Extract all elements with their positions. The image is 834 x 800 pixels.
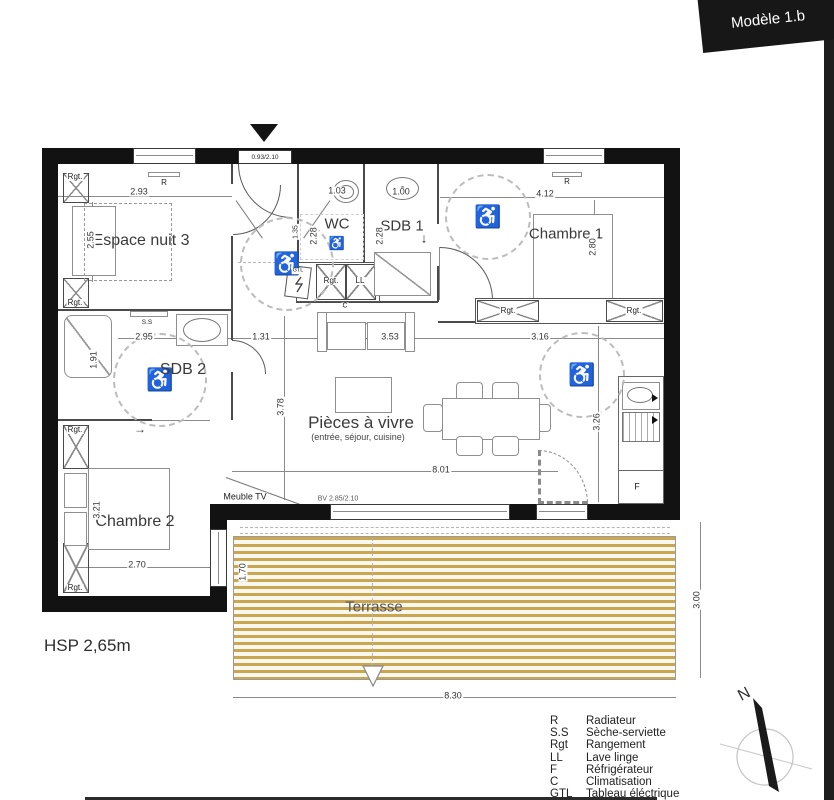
- terrace-edge-dashed: [240, 533, 670, 534]
- legend-abbr: Rgt: [550, 739, 586, 751]
- legend-label: Réfrigérateur: [586, 764, 653, 776]
- entrance-arrow-icon: [250, 124, 278, 142]
- entry-door-label: 0.93/2.10: [238, 150, 292, 164]
- rgt-tag: Rgt.: [67, 173, 84, 181]
- accessibility-circle: ♿: [539, 332, 625, 418]
- north-label: N: [735, 684, 753, 704]
- dim-label: 1.00: [391, 188, 411, 197]
- dining-table: [442, 398, 540, 440]
- basin-sdb2: [183, 318, 221, 342]
- partition: [437, 266, 439, 302]
- chair: [456, 436, 483, 456]
- room-label-chambre2: Chambre 2: [95, 513, 174, 531]
- ss-tag: S.S: [141, 320, 153, 327]
- dim-label: 8.30: [443, 692, 463, 701]
- compass-needle: [753, 698, 779, 792]
- door-leaf: [439, 247, 440, 300]
- room-label-sdb2: SDB 2: [160, 361, 206, 379]
- window-chambre2: [210, 529, 227, 587]
- dim-label: 1.70: [239, 562, 248, 582]
- wheelchair-icon: ♿: [474, 204, 501, 230]
- ll-tag: LL: [355, 277, 366, 285]
- radiator-tag: R: [160, 179, 168, 187]
- page-edge-right: [824, 0, 834, 800]
- entry-arrow-sdb1: ↓: [421, 232, 428, 245]
- dim-label: 1.31: [251, 333, 271, 342]
- pillow: [64, 473, 87, 508]
- towel-dryer: [130, 311, 168, 317]
- swing-arrow-icon: [652, 416, 658, 424]
- terrace-door-arc: [538, 450, 588, 504]
- rgt-tag: Rgt.: [626, 307, 643, 315]
- gtl-tag: GTL: [292, 268, 305, 274]
- legend-abbr: R: [550, 715, 586, 727]
- room-label-espace-nuit: Espace nuit 3: [93, 232, 190, 250]
- legend-label: Radiateur: [586, 715, 636, 727]
- fridge-tag: F: [633, 483, 641, 492]
- dim-label: 3.53: [380, 333, 400, 342]
- rgt-tag: Rgt.: [67, 584, 84, 592]
- legend-label: Lave linge: [586, 752, 638, 764]
- fridge-box: [618, 470, 664, 504]
- shower-sdb1: [374, 252, 431, 296]
- room-label-terrasse: Terrasse: [345, 599, 403, 616]
- dim-label: 2.95: [134, 333, 154, 342]
- rgt-tag: Rgt.: [67, 426, 84, 434]
- lightning-icon: [293, 276, 305, 294]
- wall-right: [664, 148, 680, 520]
- radiator-tag: R: [563, 178, 571, 186]
- sofa-cushion: [327, 322, 366, 350]
- bay-window-tag: BV 2.85/2.10: [317, 496, 359, 503]
- sofa-arm: [317, 312, 327, 352]
- terrace-edge-dashed: [240, 527, 670, 528]
- dim-label: 2.28: [376, 226, 385, 246]
- accessibility-circle: ♿: [113, 333, 207, 427]
- room-label-wc: WC: [325, 216, 350, 233]
- dim-label: 4.12: [535, 190, 555, 199]
- partition: [231, 372, 233, 420]
- terrace-deck: [233, 536, 676, 680]
- legend-label: Sèche-serviette: [586, 727, 666, 739]
- accessibility-circle: ♿: [240, 217, 334, 311]
- dim-label: 3.16: [530, 333, 550, 342]
- coffee-table: [335, 377, 392, 413]
- room-label-living-sub: (entrée, séjour, cuisine): [311, 432, 405, 442]
- wall-left: [42, 148, 58, 612]
- kitchen-sink-basin: [627, 387, 653, 403]
- window-chambre1: [543, 148, 605, 164]
- dim-label: 2.70: [127, 561, 147, 570]
- clim-tag: C: [341, 303, 348, 310]
- dim-label: 2.93: [129, 188, 149, 197]
- dim-label: 2.28: [310, 226, 319, 246]
- bay-window: [330, 504, 510, 520]
- room-label-sdb1: SDB 1: [380, 218, 423, 235]
- dim-label: 8.01: [431, 466, 451, 475]
- rgt-tag: Rgt.: [500, 307, 517, 315]
- dim-label: 3.00: [693, 590, 702, 610]
- north-compass: N: [700, 670, 834, 798]
- legend-abbr: LL: [550, 752, 586, 764]
- legend-abbr: C: [550, 776, 586, 788]
- partition: [231, 236, 233, 310]
- sofa-arm: [405, 312, 415, 352]
- partition: [438, 321, 477, 323]
- legend-abbr: F: [550, 764, 586, 776]
- pillow: [64, 512, 87, 546]
- dim-label: 1.35: [293, 224, 300, 240]
- hsp-note: HSP 2,65m: [44, 636, 131, 656]
- sdb2-door-arc: [232, 340, 266, 374]
- rgt-tag: Rgt.: [67, 299, 84, 307]
- legend-label: Rangement: [586, 739, 645, 751]
- dim-label: 2.55: [87, 230, 96, 250]
- wheelchair-icon: ♿: [329, 237, 345, 250]
- sliding-door-arrow: →: [134, 423, 146, 435]
- legend-label: Climatisation: [586, 776, 652, 788]
- model-title: Modèle 1.b: [730, 7, 806, 32]
- chair: [423, 404, 443, 432]
- wheelchair-icon: ♿: [568, 362, 595, 388]
- model-banner: Modèle 1.b: [698, 0, 834, 53]
- rgt-tag: Rgt.: [323, 277, 340, 285]
- drain-arrow-icon: [361, 664, 385, 688]
- terrace-door-sill: [536, 504, 588, 520]
- partition: [231, 310, 233, 340]
- window-espace-nuit: [133, 148, 196, 164]
- dim-label: 3.78: [277, 397, 286, 417]
- partition: [437, 164, 439, 224]
- partition: [231, 164, 233, 184]
- legend-abbr: S.S: [550, 727, 586, 739]
- swing-arrow-icon: [652, 394, 658, 402]
- dim-line: [232, 471, 558, 472]
- chair: [492, 436, 519, 456]
- tv-unit-tag: Meuble TV: [222, 493, 267, 502]
- room-label-living: Pièces à vivre: [308, 413, 414, 433]
- wall-chambre2-bottom: [42, 596, 227, 612]
- floorplan-sheet: Modèle 1.b 0.93/2.10 R R: [0, 0, 834, 800]
- dim-label: 1.03: [327, 187, 347, 196]
- dim-label: 1.91: [90, 350, 99, 370]
- accessibility-circle: ♿: [445, 174, 531, 260]
- dim-label: 3.21: [93, 500, 102, 520]
- dim-label: 2.80: [589, 237, 598, 257]
- dim-label: 3.26: [593, 412, 602, 432]
- radiator: [148, 172, 180, 177]
